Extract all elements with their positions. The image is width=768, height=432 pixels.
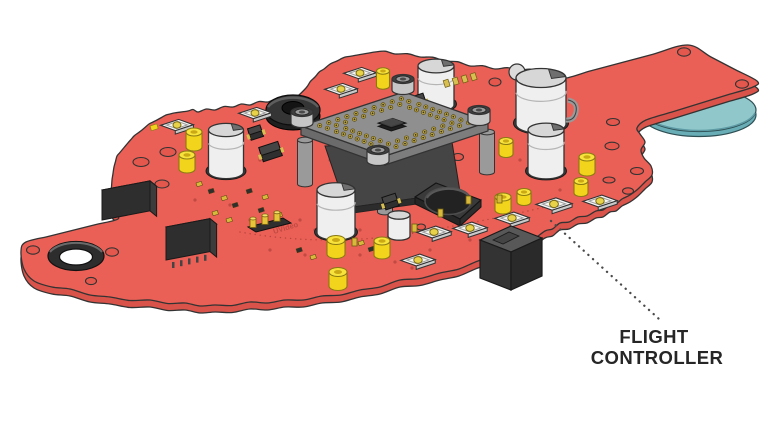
svg-text:CONTROLLER: CONTROLLER (591, 347, 723, 368)
svg-text:FLIGHT: FLIGHT (619, 326, 688, 347)
